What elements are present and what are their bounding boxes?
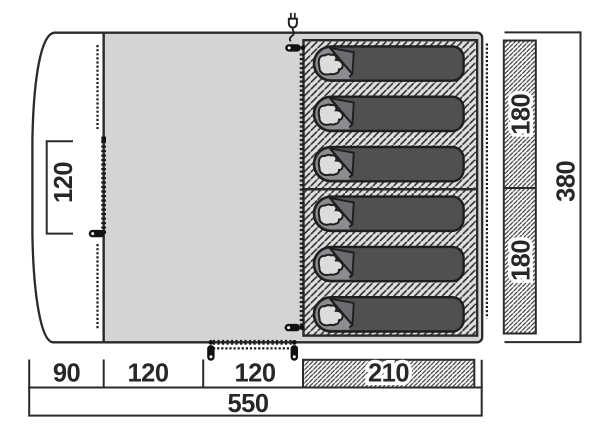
svg-text:380: 380 (553, 160, 581, 201)
svg-text:550: 550 (227, 390, 268, 418)
svg-text:90: 90 (53, 360, 81, 388)
svg-text:120: 120 (234, 360, 275, 388)
svg-text:120: 120 (50, 162, 78, 203)
svg-text:180: 180 (508, 240, 536, 281)
svg-text:120: 120 (127, 360, 168, 388)
svg-text:210: 210 (368, 360, 409, 388)
svg-text:180: 180 (508, 93, 536, 134)
